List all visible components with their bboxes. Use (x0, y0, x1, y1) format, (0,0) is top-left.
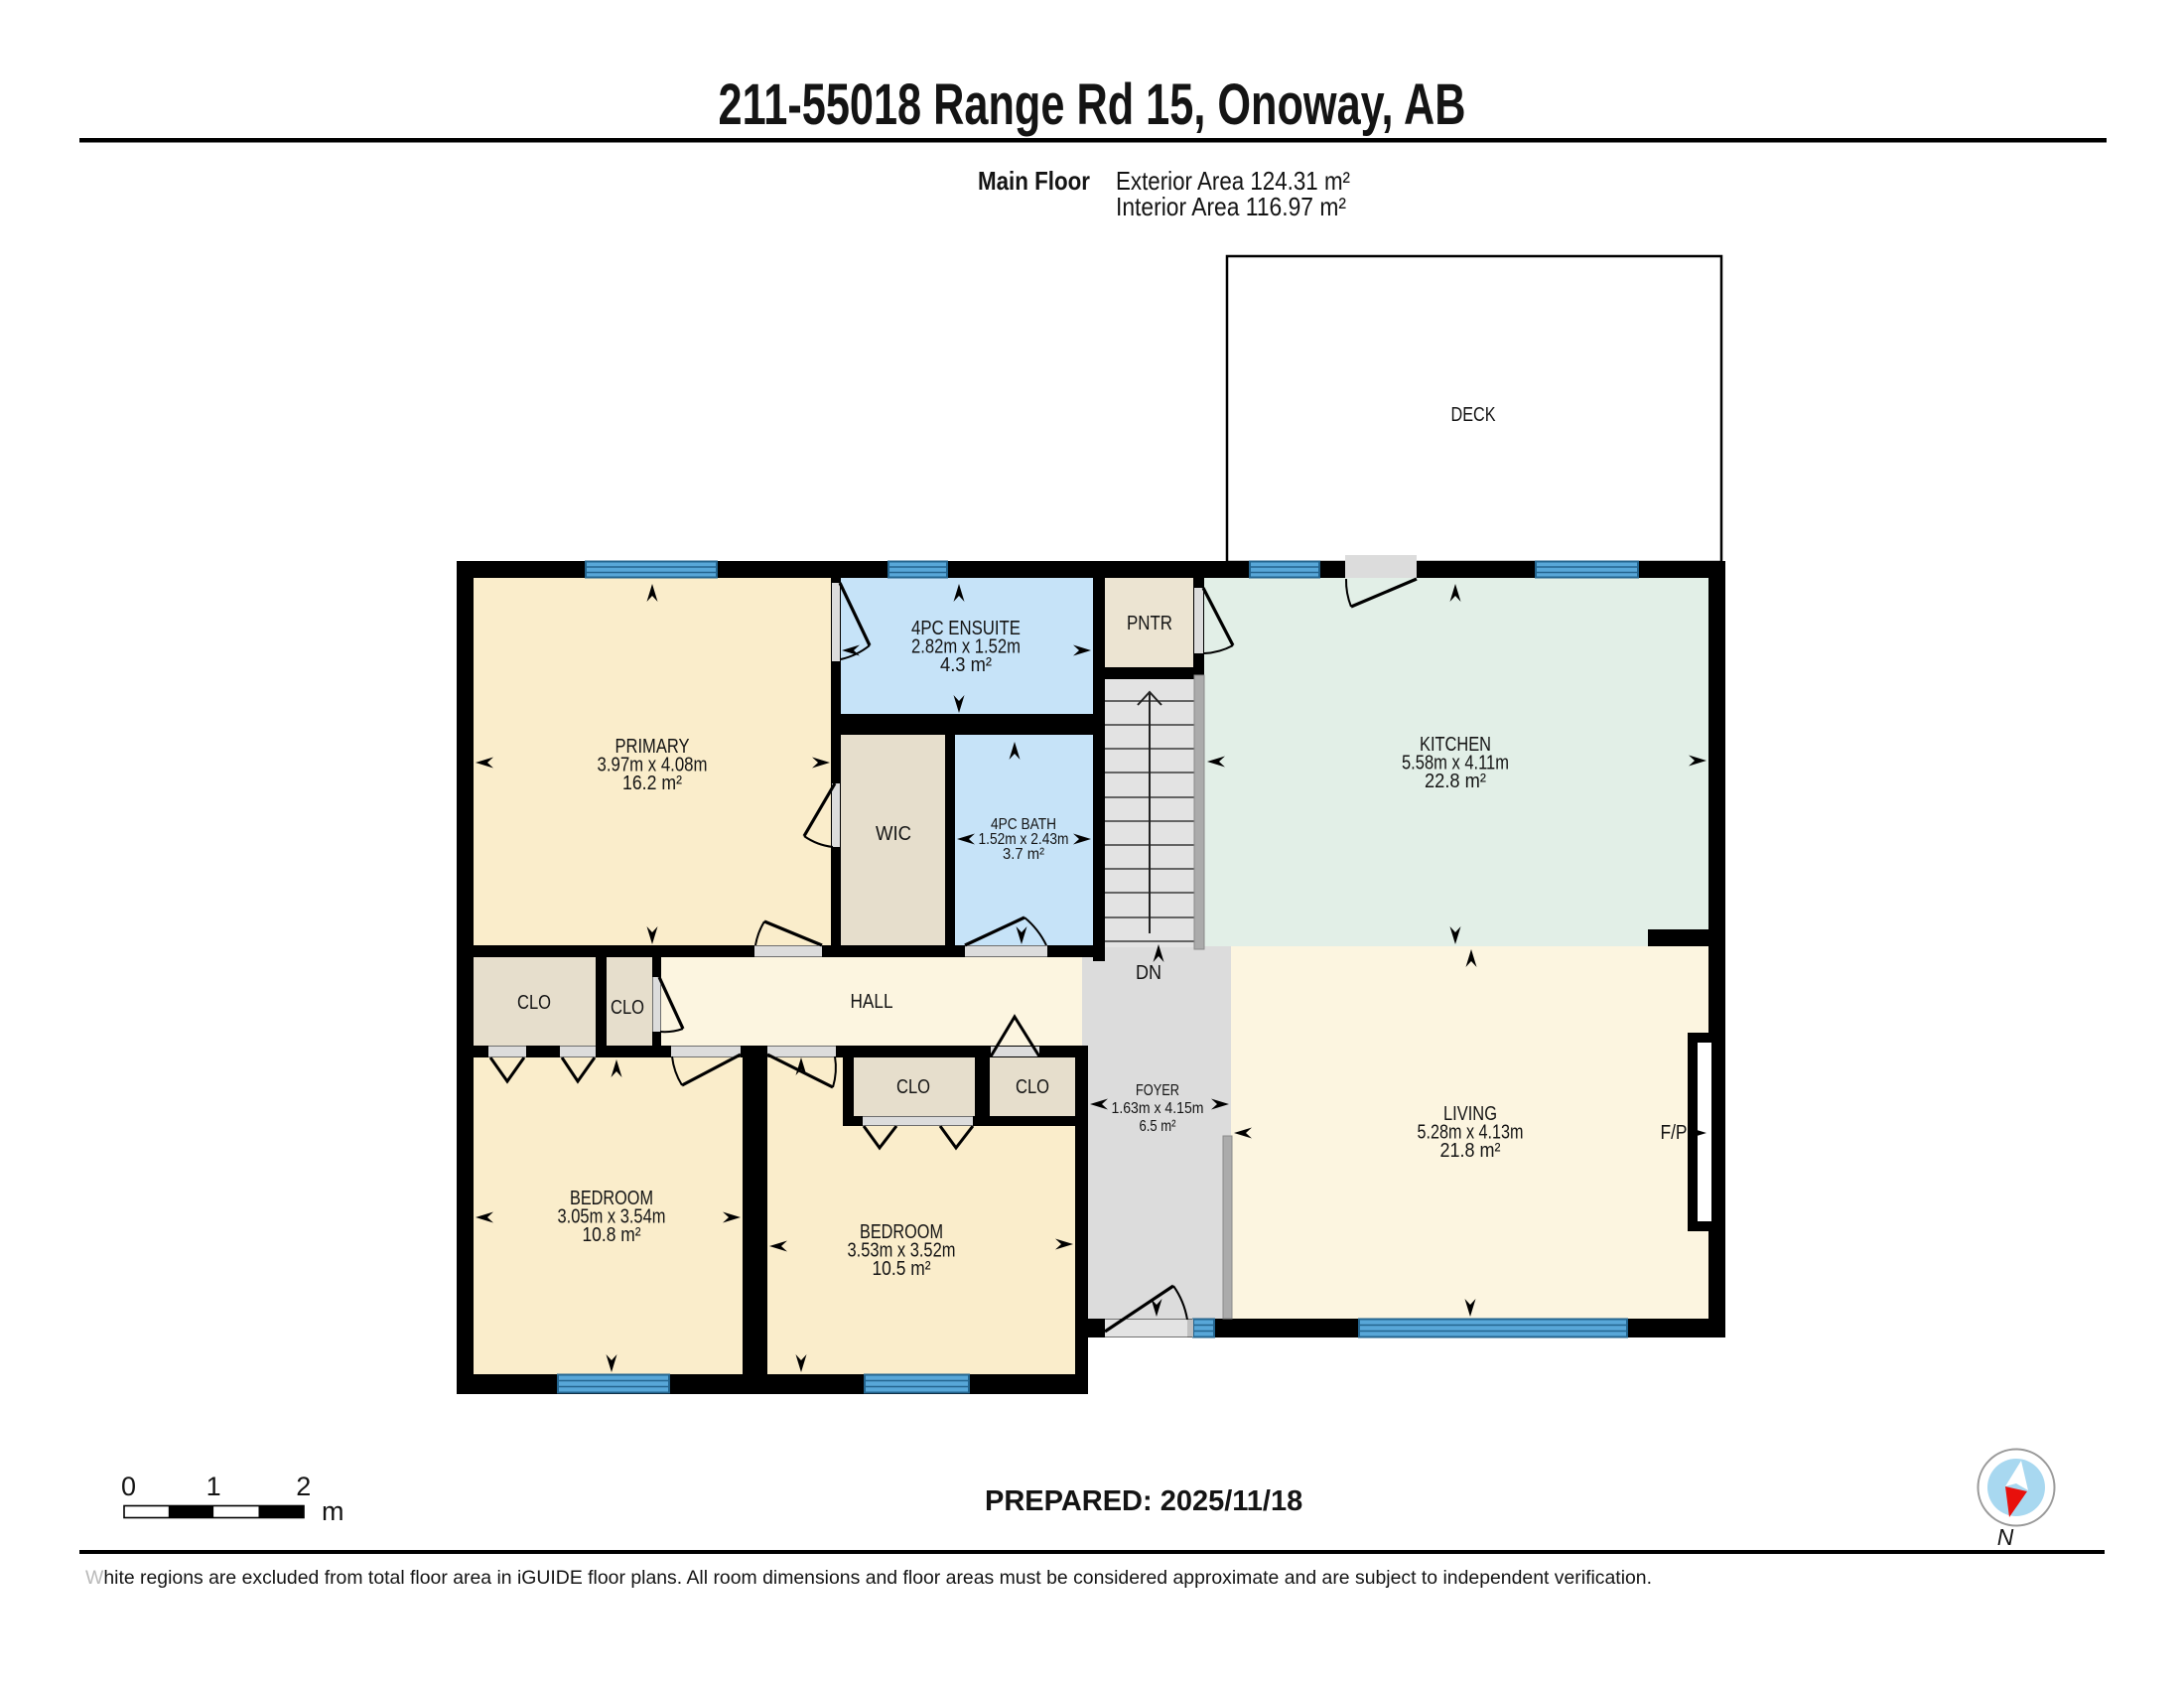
svg-text:PNTR: PNTR (1127, 613, 1172, 634)
svg-text:PREPARED: 2025/11/18: PREPARED: 2025/11/18 (985, 1485, 1302, 1517)
svg-text:DN: DN (1136, 962, 1161, 984)
svg-text:F/P: F/P (1661, 1122, 1688, 1144)
svg-text:2: 2 (296, 1472, 311, 1501)
svg-text:CLO: CLO (896, 1076, 930, 1098)
svg-text:DECK: DECK (1451, 404, 1497, 426)
svg-text:Main Floor: Main Floor (978, 166, 1090, 196)
svg-text:White regions are excluded fro: White regions are excluded from total fl… (85, 1567, 1652, 1589)
svg-text:WIC: WIC (876, 823, 911, 845)
svg-text:m: m (322, 1496, 344, 1526)
svg-text:N: N (1997, 1524, 2014, 1550)
svg-text:CLO: CLO (1016, 1076, 1049, 1098)
svg-text:HALL: HALL (851, 991, 893, 1013)
svg-text:1: 1 (206, 1472, 221, 1501)
svg-text:CLO: CLO (611, 997, 644, 1019)
svg-text:0: 0 (121, 1472, 136, 1501)
svg-text:CLO: CLO (517, 992, 551, 1014)
svg-text:211-55018 Range Rd 15, Onoway,: 211-55018 Range Rd 15, Onoway, AB (719, 72, 1466, 137)
svg-text:Interior Area 116.97 m²: Interior Area 116.97 m² (1116, 192, 1346, 221)
